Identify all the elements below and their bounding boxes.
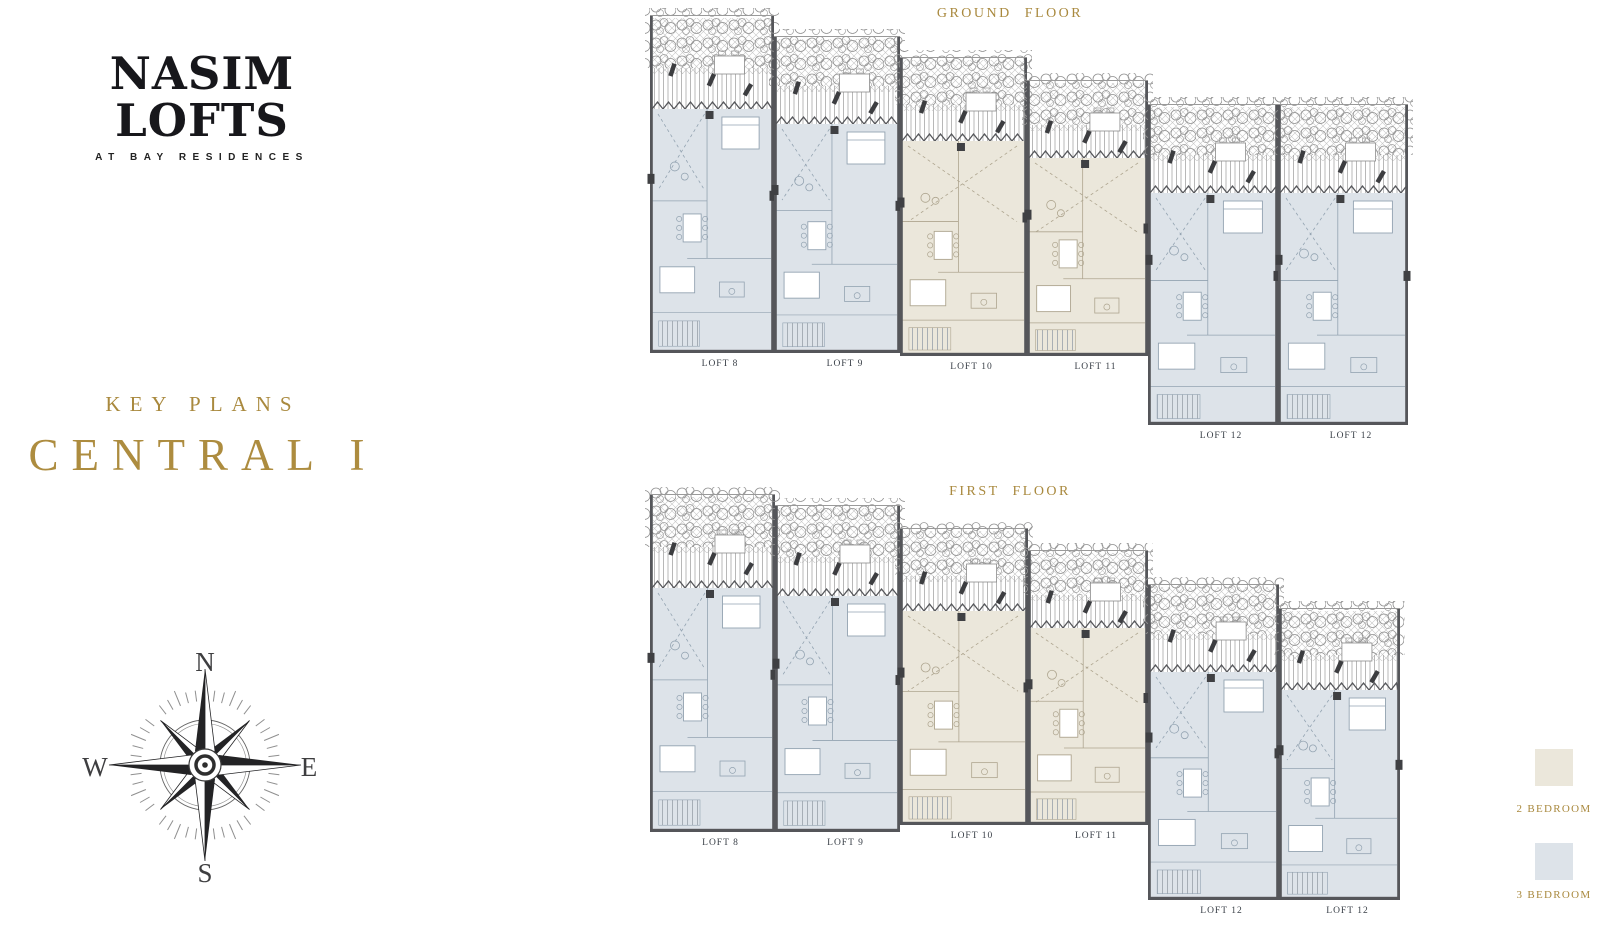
compass-south-label: S xyxy=(197,858,212,888)
brochure-page: NASIM LOFTS AT BAY RESIDENCES KEY PLANS … xyxy=(0,0,1600,934)
floor-plan-first-0 xyxy=(645,487,780,832)
floor-plan-ground-2 xyxy=(895,50,1032,356)
loft-label-first-3: LOFT 11 xyxy=(1036,831,1156,841)
loft-label-ground-4: LOFT 12 xyxy=(1161,431,1281,441)
loft-label-ground-5: LOFT 12 xyxy=(1291,431,1411,441)
loft-label-first-2: LOFT 10 xyxy=(912,831,1032,841)
floor-plan-ground-4 xyxy=(1143,97,1283,425)
loft-label-ground-3: LOFT 11 xyxy=(1036,362,1156,372)
loft-label-ground-2: LOFT 10 xyxy=(912,362,1032,372)
floor-plan-ground-1 xyxy=(769,29,905,353)
loft-label-first-0: LOFT 8 xyxy=(661,838,781,848)
floor-plan-first-3 xyxy=(1023,543,1153,825)
compass-rose: N S W E xyxy=(58,628,353,908)
loft-label-ground-1: LOFT 9 xyxy=(785,359,905,369)
floor-plan-ground-0 xyxy=(645,8,779,353)
legend-label-2-bedroom: 2 BEDROOM xyxy=(1491,803,1600,815)
legend-swatch-3-bedroom xyxy=(1535,843,1573,880)
floor-plan-first-5 xyxy=(1274,601,1405,900)
legend-label-3-bedroom: 3 BEDROOM xyxy=(1491,889,1600,901)
loft-label-first-1: LOFT 9 xyxy=(786,838,906,848)
floor-plan-first-2 xyxy=(895,521,1033,825)
loft-label-first-4: LOFT 12 xyxy=(1162,906,1282,916)
compass-north-label: N xyxy=(195,647,215,677)
legend-swatch-2-bedroom xyxy=(1535,749,1573,786)
compass-east-label: E xyxy=(301,752,318,782)
floor-plan-first-1 xyxy=(770,498,905,832)
loft-label-first-5: LOFT 12 xyxy=(1288,906,1408,916)
compass-west-label: W xyxy=(82,752,108,782)
floor-plan-ground-3 xyxy=(1022,73,1153,356)
floor-plan-ground-5 xyxy=(1273,97,1413,425)
floor-plan-first-4 xyxy=(1143,577,1284,900)
compass-star-icon xyxy=(109,669,301,861)
loft-label-ground-0: LOFT 8 xyxy=(660,359,780,369)
